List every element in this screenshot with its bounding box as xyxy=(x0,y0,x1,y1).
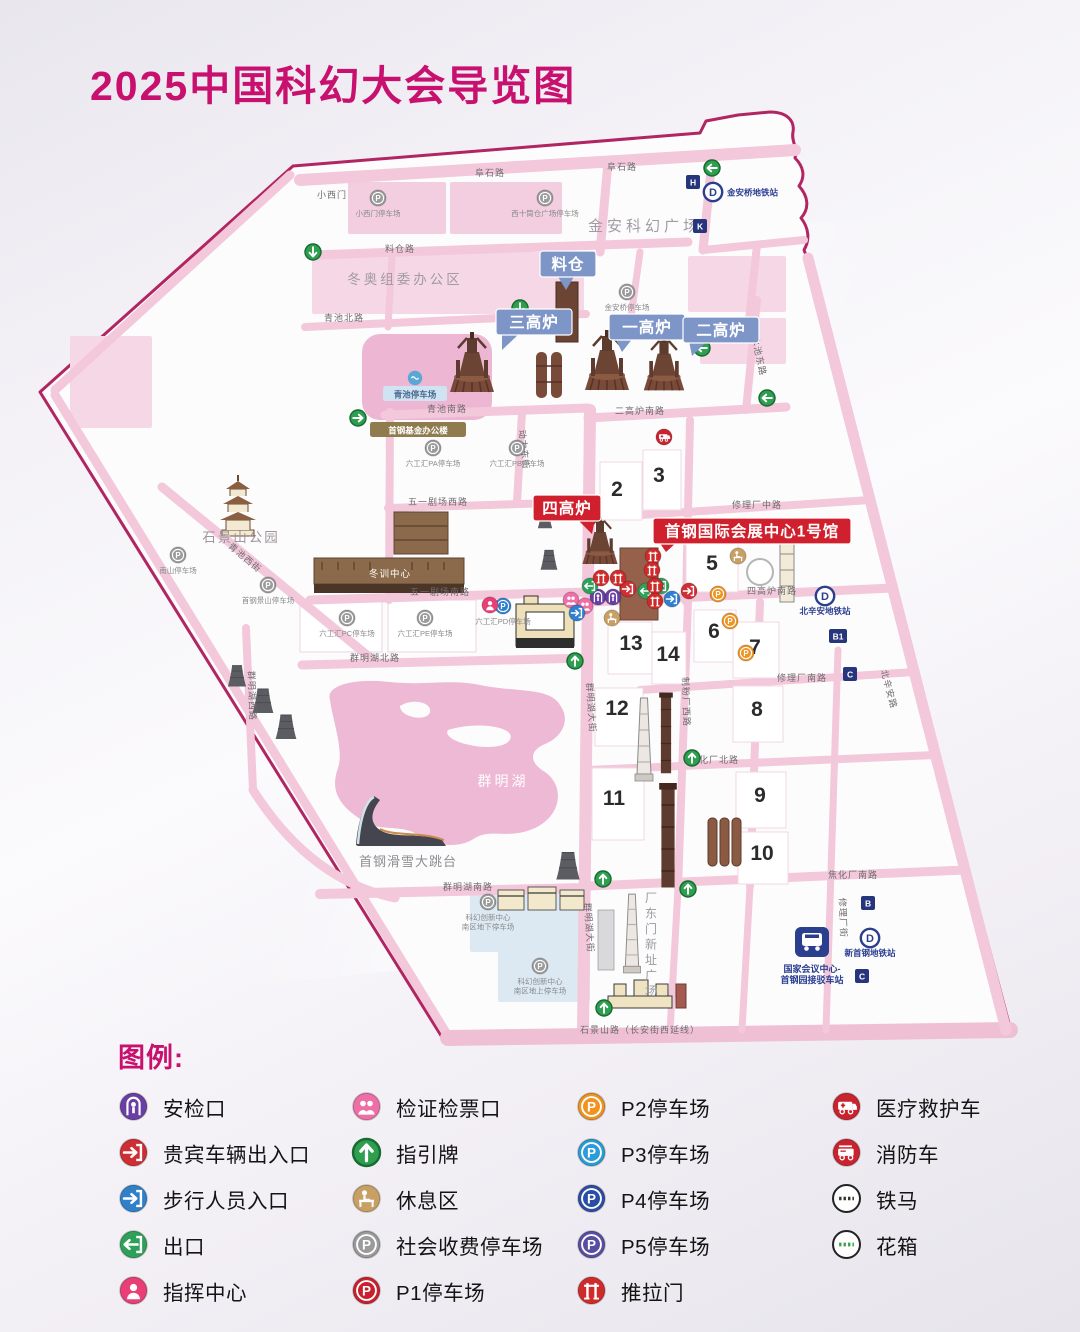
marker-door-icon xyxy=(593,570,609,586)
marker-label: 南区地上停车场 xyxy=(514,986,567,996)
legend-item: PP2停车场 xyxy=(576,1091,831,1122)
svg-text:P: P xyxy=(587,1191,596,1206)
planter-icon xyxy=(831,1229,862,1260)
marker-parking-icon: P xyxy=(425,440,441,456)
road-label: 五一剧场南路 xyxy=(410,586,470,597)
legend-item-label: 出口 xyxy=(163,1230,205,1260)
svg-text:P: P xyxy=(485,898,491,907)
road-label: 青池北路 xyxy=(324,312,364,323)
marker-arrow-icon xyxy=(704,160,720,176)
legend-item: 指引牌 xyxy=(351,1137,576,1168)
road-label: 制粉厂西路 xyxy=(680,677,693,727)
command-icon xyxy=(118,1275,149,1306)
ticket-icon xyxy=(351,1091,382,1122)
legend-item-label: P3停车场 xyxy=(621,1138,710,1168)
marker-arrow-icon xyxy=(684,750,700,766)
marker-label: 小西门停车场 xyxy=(356,208,401,218)
legend-item-label: P5停车场 xyxy=(621,1230,710,1260)
road-label: 修理厂中路 xyxy=(732,499,782,510)
legend-column: 安检口贵宾车辆出入口步行人员入口出口指挥中心 xyxy=(118,1091,351,1321)
svg-text:P: P xyxy=(344,614,350,623)
legend-item: 指挥中心 xyxy=(118,1275,351,1306)
legend-item-label: 步行人员入口 xyxy=(163,1184,289,1214)
marker-arrow-icon xyxy=(305,244,321,260)
marker-label: 南区地下停车场 xyxy=(462,922,515,932)
legend: 图例: 安检口贵宾车辆出入口步行人员入口出口指挥中心检证检票口指引牌休息区P社会… xyxy=(118,1036,1018,1321)
marker-label: 六工汇PC停车场 xyxy=(319,628,375,638)
legend-grid: 安检口贵宾车辆出入口步行人员入口出口指挥中心检证检票口指引牌休息区P社会收费停车… xyxy=(118,1091,1018,1321)
legend-item: PP4停车场 xyxy=(576,1183,831,1214)
marker-parking-icon: P xyxy=(260,577,276,593)
road-label: 青池南路 xyxy=(427,403,467,414)
svg-text:P: P xyxy=(375,194,381,203)
road-label: 阜石路 xyxy=(607,161,637,172)
legend-item: 休息区 xyxy=(351,1183,576,1214)
marker-parking-icon: P xyxy=(339,610,355,626)
marker-arrow-icon xyxy=(596,1000,612,1016)
marker-door-icon xyxy=(610,570,626,586)
legend-item: PP1停车场 xyxy=(351,1275,576,1306)
marker-parking-icon: P xyxy=(170,547,186,563)
legend-item: 安检口 xyxy=(118,1091,351,1122)
legend-heading: 图例: xyxy=(118,1036,1018,1075)
road-label: 焦化厂南路 xyxy=(828,869,878,880)
svg-text:P: P xyxy=(500,602,506,611)
parking-icon: P xyxy=(576,1183,607,1214)
legend-item-label: P1停车场 xyxy=(396,1276,485,1306)
legend-item-label: 铁马 xyxy=(876,1184,918,1214)
tanks-illustration xyxy=(708,818,741,866)
legend-item-label: 指引牌 xyxy=(396,1138,459,1168)
legend-item: PP5停车场 xyxy=(576,1229,831,1260)
medical-icon xyxy=(831,1091,862,1122)
security-icon xyxy=(118,1091,149,1122)
marker-label: 南山停车场 xyxy=(159,565,197,575)
hall-number: 11 xyxy=(603,787,626,810)
svg-text:B1: B1 xyxy=(833,631,844,641)
legend-item: 推拉门 xyxy=(576,1275,831,1306)
marker-parking-icon: P xyxy=(532,958,548,974)
marker-door-icon xyxy=(647,593,663,609)
svg-text:C: C xyxy=(847,669,853,679)
rest-icon xyxy=(351,1183,382,1214)
hall-number: 6 xyxy=(708,620,720,643)
road-label: 修理厂街 xyxy=(837,898,849,938)
area-label: 群明湖 xyxy=(478,773,529,789)
marker-security-icon xyxy=(605,589,621,605)
marker-square-icon: H xyxy=(686,175,700,189)
marker-label: 北辛安地铁站 xyxy=(799,606,851,616)
legend-item: 出口 xyxy=(118,1229,351,1260)
marker-label: 西十筒仓广场停车场 xyxy=(511,208,579,218)
marker-arrow-icon xyxy=(567,653,583,669)
marker-label: 首钢景山停车场 xyxy=(242,595,295,605)
parking-icon: P xyxy=(351,1229,382,1260)
barrier-icon xyxy=(831,1183,862,1214)
marker-enter-icon xyxy=(569,605,585,621)
road-label: 石景山路（长安街西延线） xyxy=(580,1024,700,1035)
road-label: 料仓路 xyxy=(385,243,415,254)
marker-command-icon xyxy=(482,597,498,613)
marker-square-icon: K xyxy=(693,219,707,233)
marker-label: 六工汇PD停车场 xyxy=(475,616,531,626)
legend-item-label: 社会收费停车场 xyxy=(396,1230,543,1260)
marker-label: 科幻创新中心 xyxy=(466,912,511,922)
marker-label: 六工汇PB停车场 xyxy=(489,458,545,468)
svg-text:D: D xyxy=(821,591,829,603)
svg-text:P: P xyxy=(537,962,543,971)
map-pill-label: 首钢基金办公楼 xyxy=(370,422,466,437)
road-label: 群明湖北路 xyxy=(350,652,400,663)
marker-medical-icon xyxy=(656,429,672,445)
marker-arrow-icon xyxy=(595,871,611,887)
svg-text:P: P xyxy=(727,617,733,626)
marker-parking-icon: P xyxy=(417,610,433,626)
legend-item-label: 花箱 xyxy=(876,1230,918,1260)
marker-enter-icon xyxy=(664,591,680,607)
svg-text:K: K xyxy=(697,221,704,231)
hall-number: 10 xyxy=(750,842,773,865)
legend-item-label: 安检口 xyxy=(163,1092,226,1122)
legend-column: 医疗救护车消防车铁马花箱 xyxy=(831,1091,1016,1321)
svg-text:四高炉: 四高炉 xyxy=(542,499,592,518)
parking-icon: P xyxy=(351,1275,382,1306)
arrow-icon xyxy=(351,1137,382,1168)
enter-icon xyxy=(118,1183,149,1214)
marker-parking-icon: P xyxy=(537,190,553,206)
legend-item-label: 贵宾车辆出入口 xyxy=(163,1138,310,1168)
parking-icon: P xyxy=(576,1229,607,1260)
vip-icon xyxy=(118,1137,149,1168)
legend-item-label: 检证检票口 xyxy=(396,1092,501,1122)
legend-item-label: 消防车 xyxy=(876,1138,939,1168)
marker-vip-icon xyxy=(681,583,697,599)
road-label: 五一剧场西路 xyxy=(408,496,468,507)
svg-text:P: P xyxy=(587,1099,596,1114)
marker-metro-icon: D xyxy=(704,183,722,201)
marker-parking-icon: P xyxy=(738,645,754,661)
area-label: 冬训中心 xyxy=(369,568,411,580)
door-icon xyxy=(576,1275,607,1306)
svg-text:C: C xyxy=(859,971,865,981)
marker-parking-icon: P xyxy=(619,284,635,300)
svg-text:一高炉: 一高炉 xyxy=(622,318,672,337)
area-label: 厂东门新址广场 xyxy=(645,891,657,998)
hall-number: 5 xyxy=(706,552,718,575)
svg-text:P: P xyxy=(587,1237,596,1252)
svg-text:P: P xyxy=(175,551,181,560)
svg-text:P: P xyxy=(624,288,630,297)
marker-label: 六工汇PA停车场 xyxy=(406,458,461,468)
area-label: 金安科幻广场 xyxy=(588,218,702,235)
svg-text:B: B xyxy=(865,898,871,908)
area-label: 首钢滑雪大跳台 xyxy=(359,854,457,869)
svg-text:首钢基金办公楼: 首钢基金办公楼 xyxy=(388,426,448,436)
marker-label: 金安桥停车场 xyxy=(605,302,650,312)
marker-label: 六工汇PE停车场 xyxy=(397,628,453,638)
svg-text:P: P xyxy=(362,1237,371,1252)
marker-arrow-icon xyxy=(350,410,366,426)
parking-icon: P xyxy=(576,1091,607,1122)
road-label: 修理厂南路 xyxy=(777,672,827,683)
svg-text:P: P xyxy=(542,194,548,203)
svg-text:二高炉: 二高炉 xyxy=(696,321,746,340)
hall-number: 9 xyxy=(754,784,766,807)
marker-parking-icon: P xyxy=(480,894,496,910)
road-label: 四高炉南路 xyxy=(747,585,797,596)
marker-square-icon: B xyxy=(861,896,875,910)
marker-label: 科幻创新中心 xyxy=(518,976,563,986)
marker-label: 新首钢地铁站 xyxy=(844,948,896,958)
poster-canvas: 2025中国科幻大会导览图 xyxy=(0,0,1080,1332)
parking-icon: P xyxy=(576,1137,607,1168)
exit-icon xyxy=(118,1229,149,1260)
marker-arrow-icon xyxy=(680,881,696,897)
hall-number: 2 xyxy=(611,478,623,501)
svg-text:青池停车场: 青池停车场 xyxy=(394,390,437,400)
hall-number: 13 xyxy=(619,632,642,655)
legend-item: 花箱 xyxy=(831,1229,1016,1260)
svg-text:P: P xyxy=(362,1283,371,1298)
legend-item: 贵宾车辆出入口 xyxy=(118,1137,351,1168)
area-label: 冬奥组委办公区 xyxy=(347,271,463,287)
marker-label: 首钢园接驳车站 xyxy=(780,974,843,985)
marker-parking-icon: P xyxy=(710,586,726,602)
svg-text:P: P xyxy=(715,590,721,599)
road-label: 群明湖南路 xyxy=(443,881,493,892)
legend-item: 消防车 xyxy=(831,1137,1016,1168)
svg-text:P: P xyxy=(422,614,428,623)
svg-text:P: P xyxy=(514,444,520,453)
hall-number: 3 xyxy=(653,464,665,487)
svg-text:三高炉: 三高炉 xyxy=(509,313,559,332)
marker-parking-icon: P xyxy=(722,613,738,629)
marker-parking-icon: P xyxy=(370,190,386,206)
legend-column: 检证检票口指引牌休息区P社会收费停车场PP1停车场 xyxy=(351,1091,576,1321)
svg-text:P: P xyxy=(430,444,436,453)
marker-bus-icon xyxy=(795,927,829,957)
legend-item-label: 医疗救护车 xyxy=(876,1092,981,1122)
marker-parking-icon: P xyxy=(509,440,525,456)
legend-item-label: 休息区 xyxy=(396,1184,459,1214)
svg-text:料仓: 料仓 xyxy=(551,255,584,274)
map-pill-label: 青池停车场 xyxy=(383,386,447,401)
road-label: 阜石路 xyxy=(475,167,505,178)
fire-icon xyxy=(831,1137,862,1168)
svg-text:首钢国际会展中心1号馆: 首钢国际会展中心1号馆 xyxy=(665,522,840,541)
marker-label: 金安桥地铁站 xyxy=(726,188,779,198)
hall-number: 8 xyxy=(751,698,763,721)
hall-number: 12 xyxy=(605,697,628,720)
marker-rest-icon xyxy=(604,610,620,626)
marker-door-icon xyxy=(647,578,663,594)
legend-item: P社会收费停车场 xyxy=(351,1229,576,1260)
marker-label: 国家会议中心- xyxy=(784,963,841,974)
marker-wave-icon xyxy=(408,371,422,385)
legend-item: 步行人员入口 xyxy=(118,1183,351,1214)
legend-item-label: 推拉门 xyxy=(621,1276,684,1306)
road-label: 小西门 xyxy=(317,189,347,200)
marker-metro-icon: D xyxy=(816,587,834,605)
marker-metro-icon: D xyxy=(861,929,879,947)
legend-item-label: 指挥中心 xyxy=(163,1276,247,1306)
area-label: 石景山公园 xyxy=(202,530,280,545)
svg-text:P: P xyxy=(265,581,271,590)
hall-number: 14 xyxy=(656,643,680,666)
road-label: 群明湖西路 xyxy=(246,671,259,721)
legend-item-label: P2停车场 xyxy=(621,1092,710,1122)
marker-door-icon xyxy=(644,562,660,578)
marker-rest-icon xyxy=(730,548,746,564)
svg-text:D: D xyxy=(709,187,717,199)
legend-item: 检证检票口 xyxy=(351,1091,576,1122)
svg-text:D: D xyxy=(866,933,874,945)
svg-text:P: P xyxy=(743,649,749,658)
legend-item: 医疗救护车 xyxy=(831,1091,1016,1122)
marker-square-icon: C xyxy=(843,667,857,681)
legend-column: PP2停车场PP3停车场PP4停车场PP5停车场推拉门 xyxy=(576,1091,831,1321)
marker-square-icon: C xyxy=(855,969,869,983)
legend-item-label: P4停车场 xyxy=(621,1184,710,1214)
svg-text:H: H xyxy=(690,177,696,187)
legend-item: 铁马 xyxy=(831,1183,1016,1214)
svg-text:P: P xyxy=(587,1145,596,1160)
road-label: 二高炉南路 xyxy=(615,405,665,416)
marker-arrow-icon xyxy=(759,390,775,406)
legend-item: PP3停车场 xyxy=(576,1137,831,1168)
marker-square-icon: B1 xyxy=(829,629,847,643)
